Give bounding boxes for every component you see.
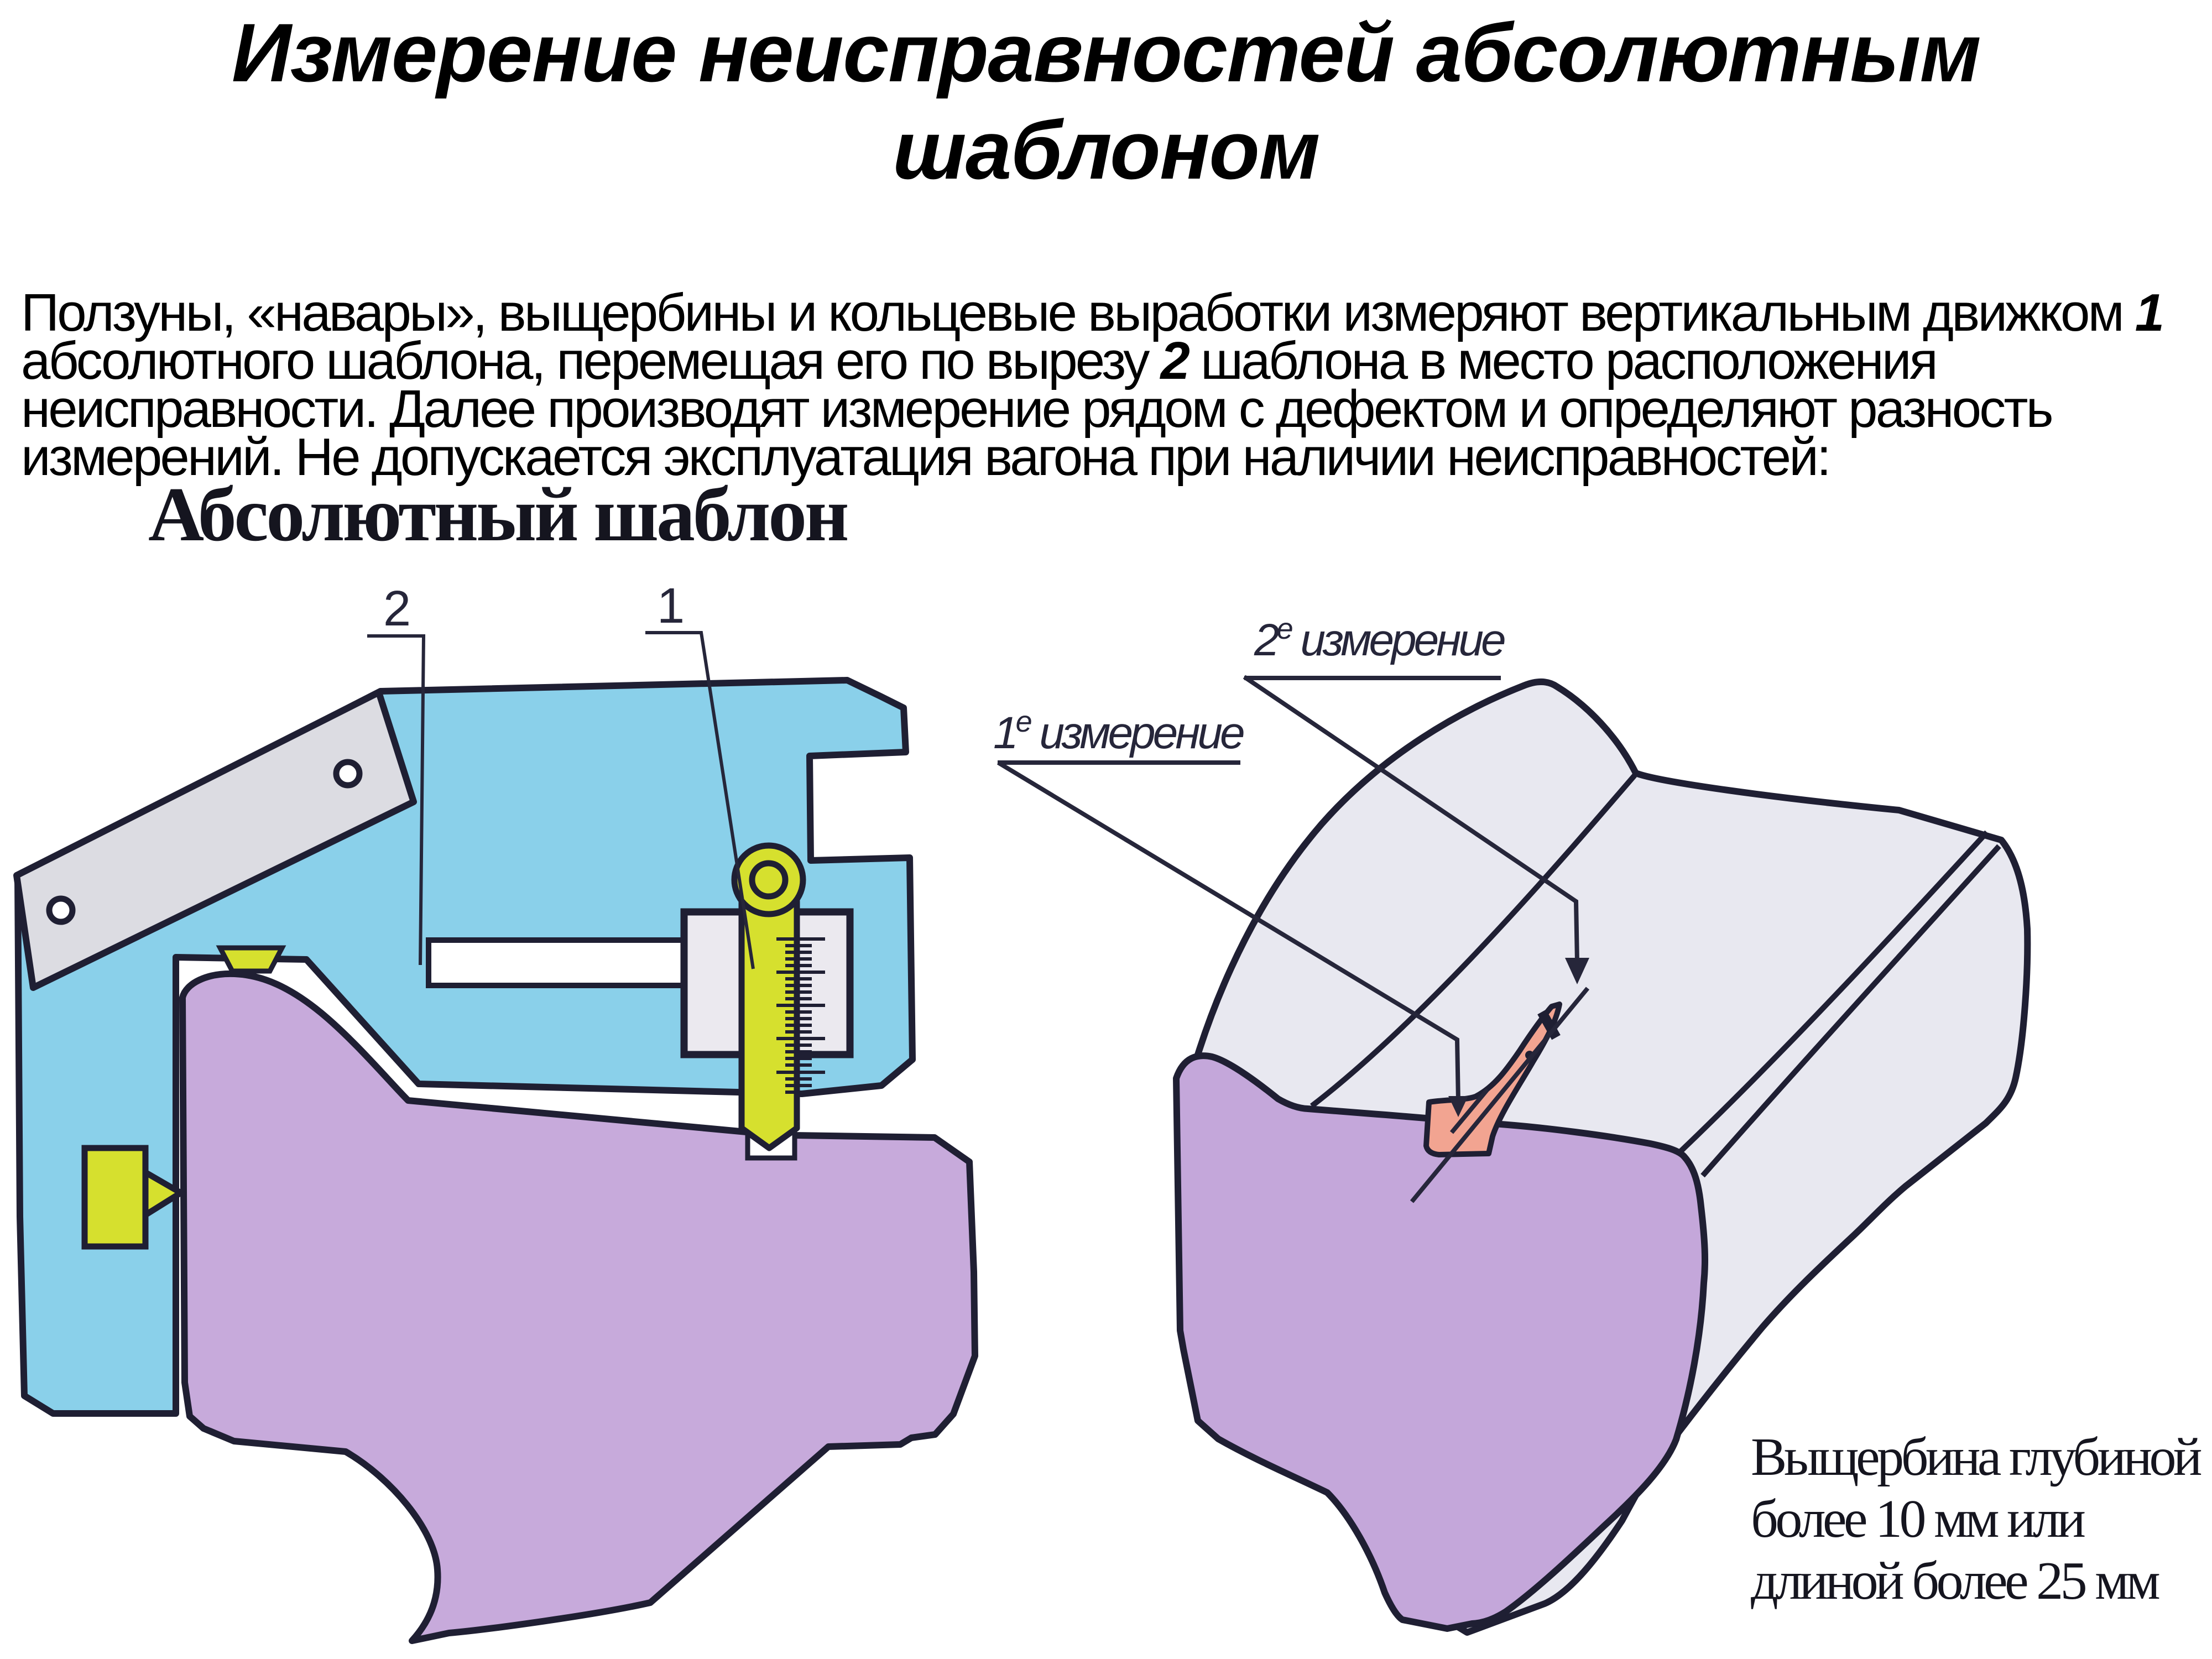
- svg-text:Абсолютный шаблон: Абсолютный шаблон: [148, 472, 847, 557]
- svg-text:1е измерение: 1е измерение: [993, 705, 1244, 758]
- svg-text:2: 2: [383, 581, 411, 637]
- svg-text:длиной более 25 мм: длиной более 25 мм: [1751, 1551, 2159, 1611]
- svg-text:1: 1: [657, 578, 685, 634]
- svg-text:более 10 мм или: более 10 мм или: [1751, 1489, 2085, 1549]
- svg-text:Выщербина глубиной: Выщербина глубиной: [1751, 1427, 2201, 1487]
- svg-text:2е измерение: 2е измерение: [1254, 612, 1505, 665]
